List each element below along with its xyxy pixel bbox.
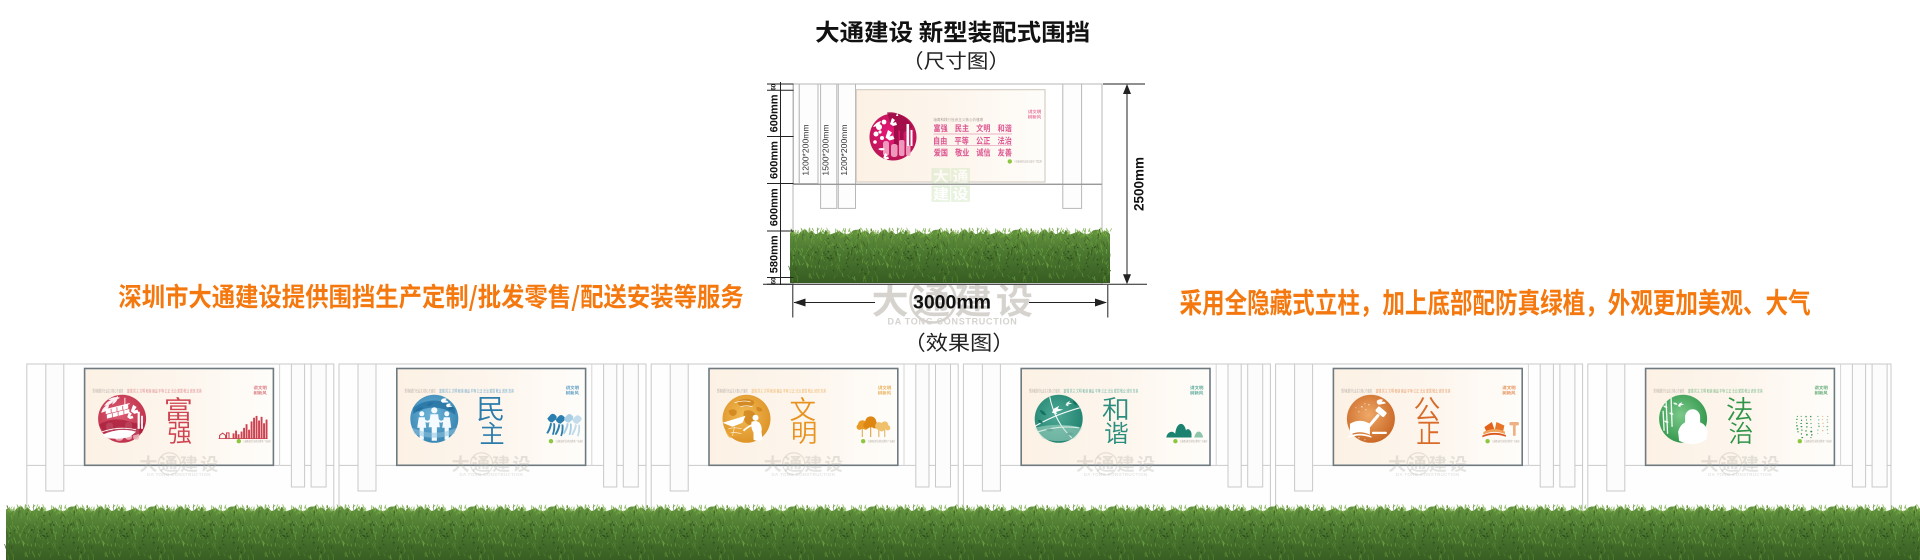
svg-text:600mm: 600mm xyxy=(769,188,781,226)
svg-text:1500*200mm: 1500*200mm xyxy=(821,124,831,175)
svg-text:60: 60 xyxy=(772,83,778,90)
svg-text:60: 60 xyxy=(772,277,778,284)
svg-text:580mm: 580mm xyxy=(769,235,781,273)
svg-text:1200*200mm: 1200*200mm xyxy=(839,124,849,175)
svg-text:600mm: 600mm xyxy=(769,94,781,132)
svg-text:600mm: 600mm xyxy=(769,141,781,179)
svg-text:1200*200mm: 1200*200mm xyxy=(801,124,811,175)
svg-text:3000mm: 3000mm xyxy=(913,292,991,314)
svg-text:2500mm: 2500mm xyxy=(1132,157,1147,211)
